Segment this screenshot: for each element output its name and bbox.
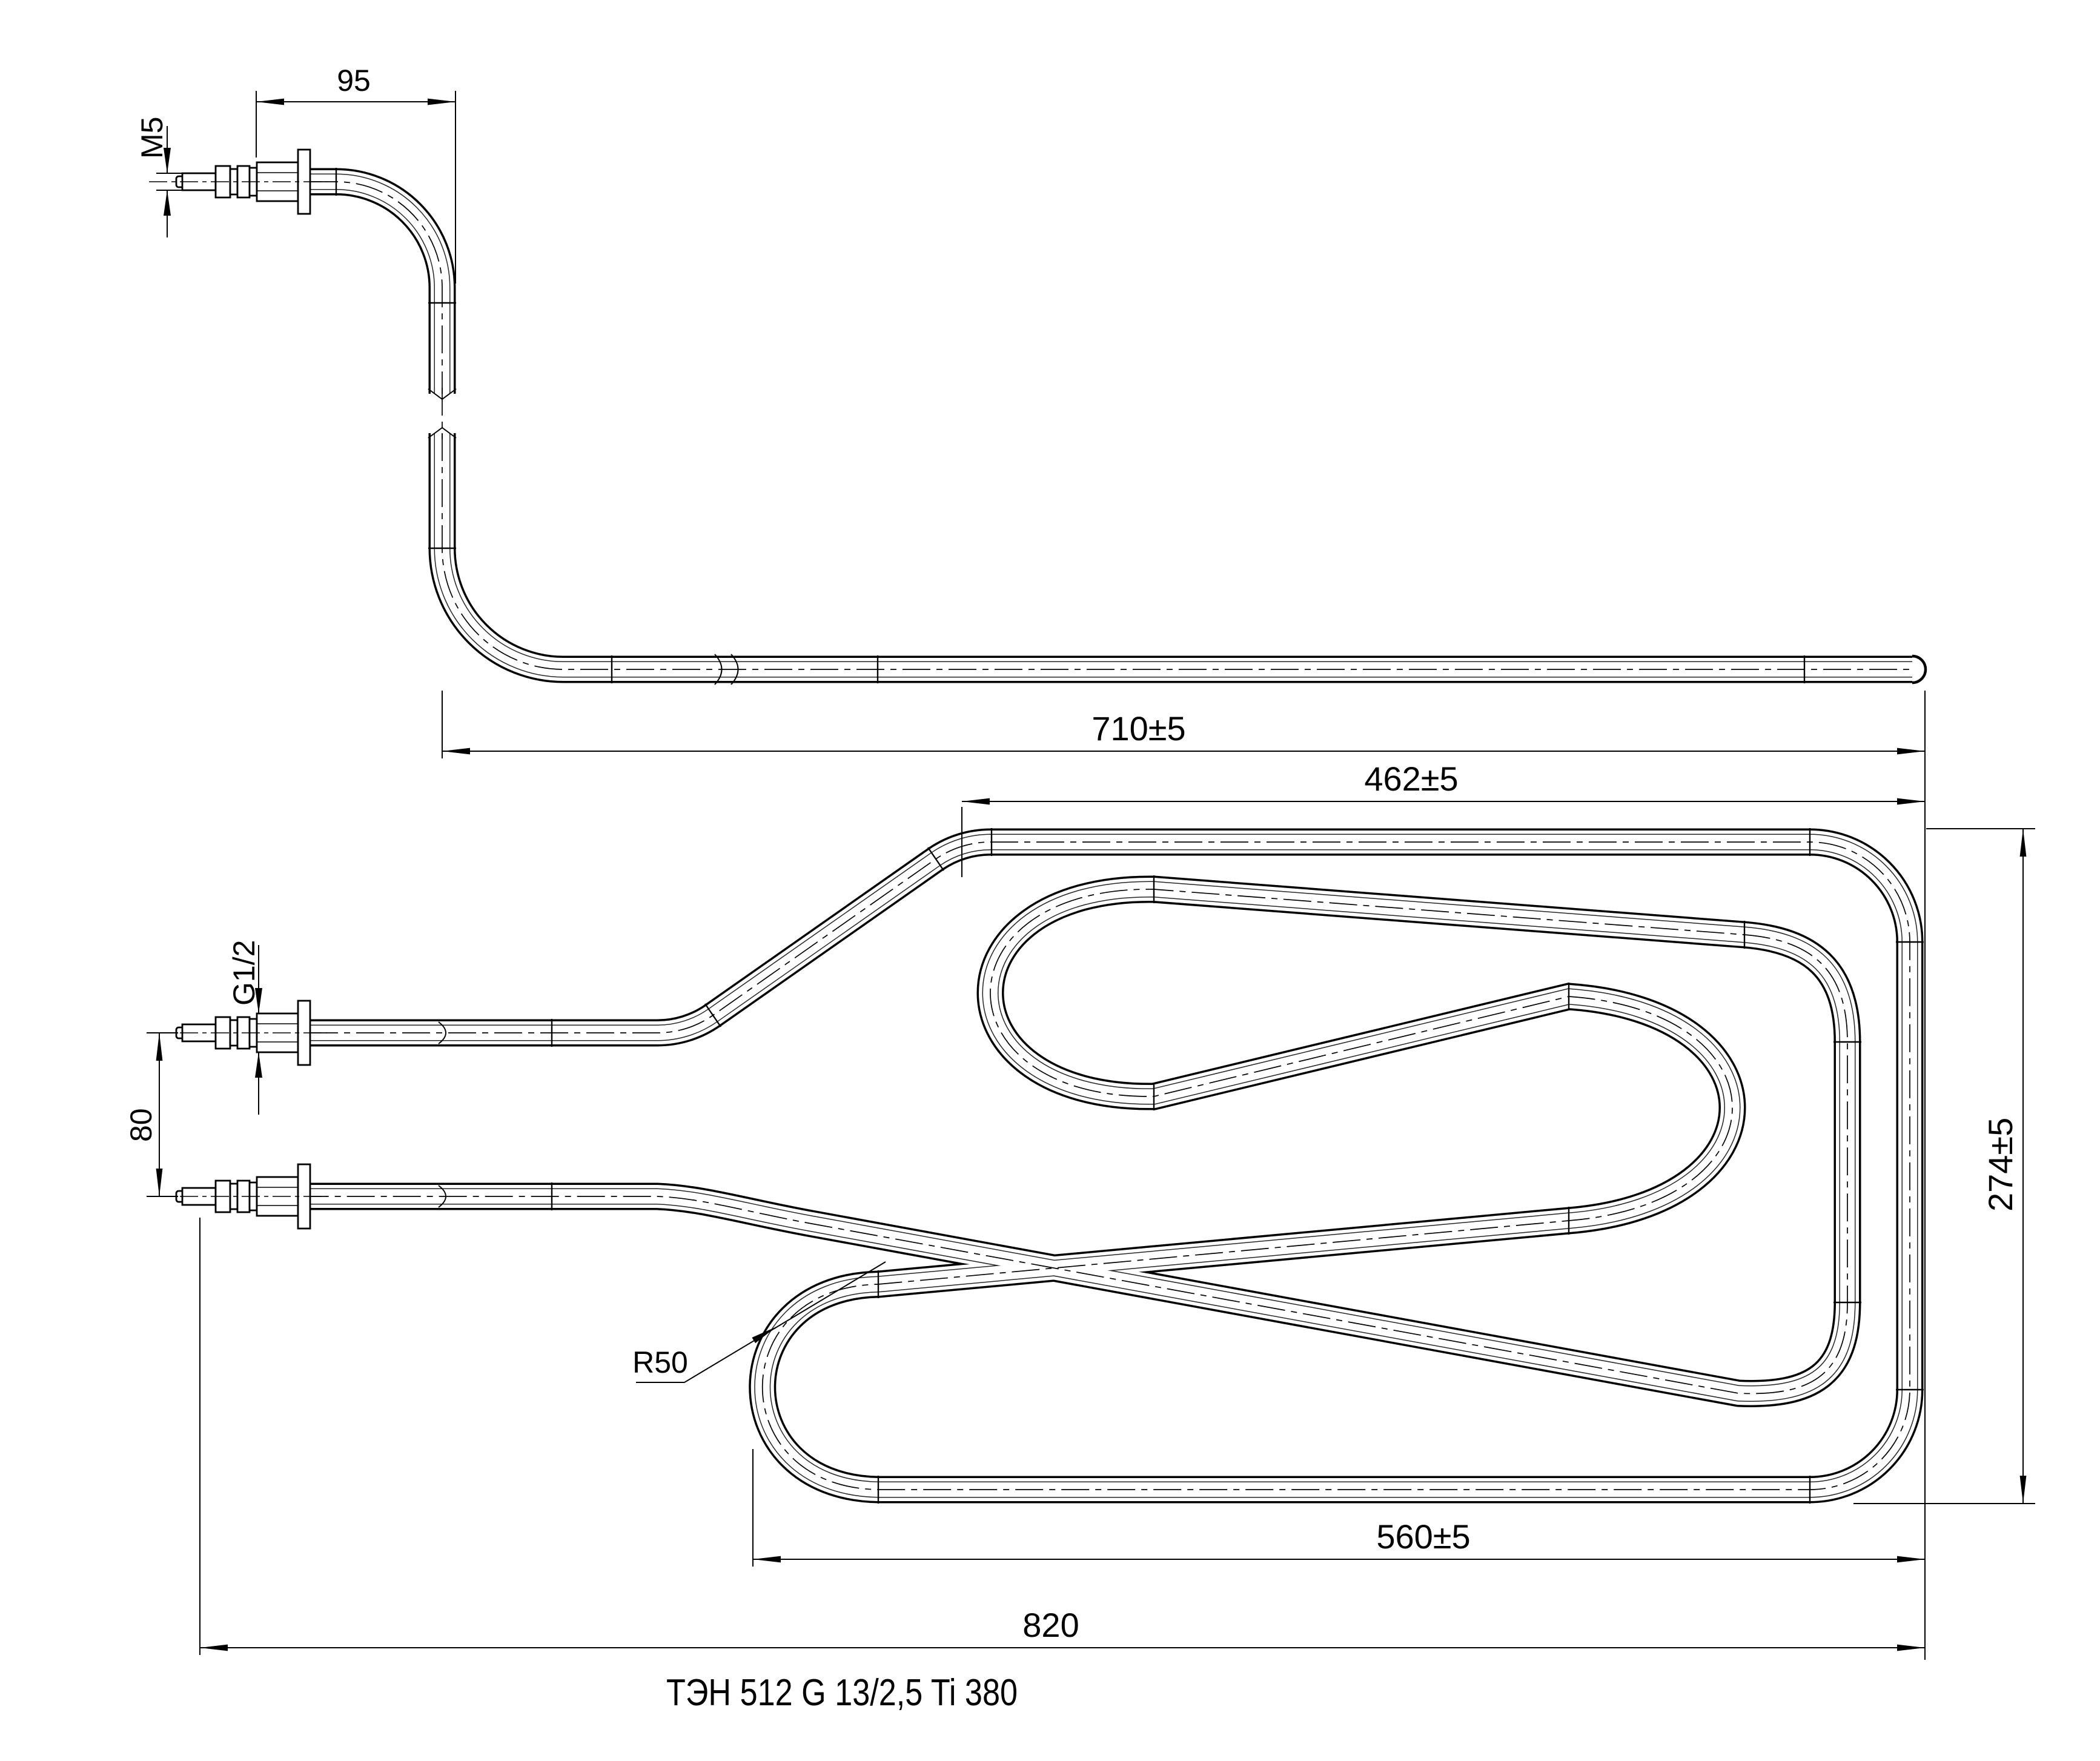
heating-element-drawing: 95 M5 710±5 462±5 274±5	[0, 0, 2100, 1761]
dim-560-label: 560±5	[1376, 1517, 1470, 1556]
dim-710-label: 710±5	[1091, 709, 1185, 748]
dim-r50-label: R50	[632, 1345, 688, 1379]
dim-m5-label: M5	[135, 117, 169, 159]
thread-callout-m5: M5	[135, 117, 182, 237]
dim-462-label: 462±5	[1364, 760, 1458, 798]
heating-element-plan-view	[149, 828, 1924, 1504]
dim-80-label: 80	[124, 1108, 158, 1142]
drawing-page: 95 M5 710±5 462±5 274±5	[0, 0, 2100, 1761]
terminal-fitting-side	[149, 150, 327, 214]
drawing-caption: ТЭН 512 G 13/2,5 Ti 380	[666, 1672, 1018, 1714]
dim-820-label: 820	[1022, 1606, 1079, 1644]
heating-element-side-view	[149, 150, 1926, 685]
tube-end-cap	[1912, 656, 1926, 683]
dimension-560: 560±5	[753, 1449, 1925, 1567]
dimension-462: 462±5	[962, 760, 1925, 877]
dim-g12-label: G1/2	[227, 940, 261, 1006]
dim-95-label: 95	[337, 64, 371, 98]
dimensions: 95 M5 710±5 462±5 274±5	[124, 64, 2035, 1660]
dimension-274: 274±5	[1853, 829, 2035, 1504]
dimension-80: 80	[124, 1033, 178, 1196]
dim-274-label: 274±5	[1981, 1118, 2019, 1212]
